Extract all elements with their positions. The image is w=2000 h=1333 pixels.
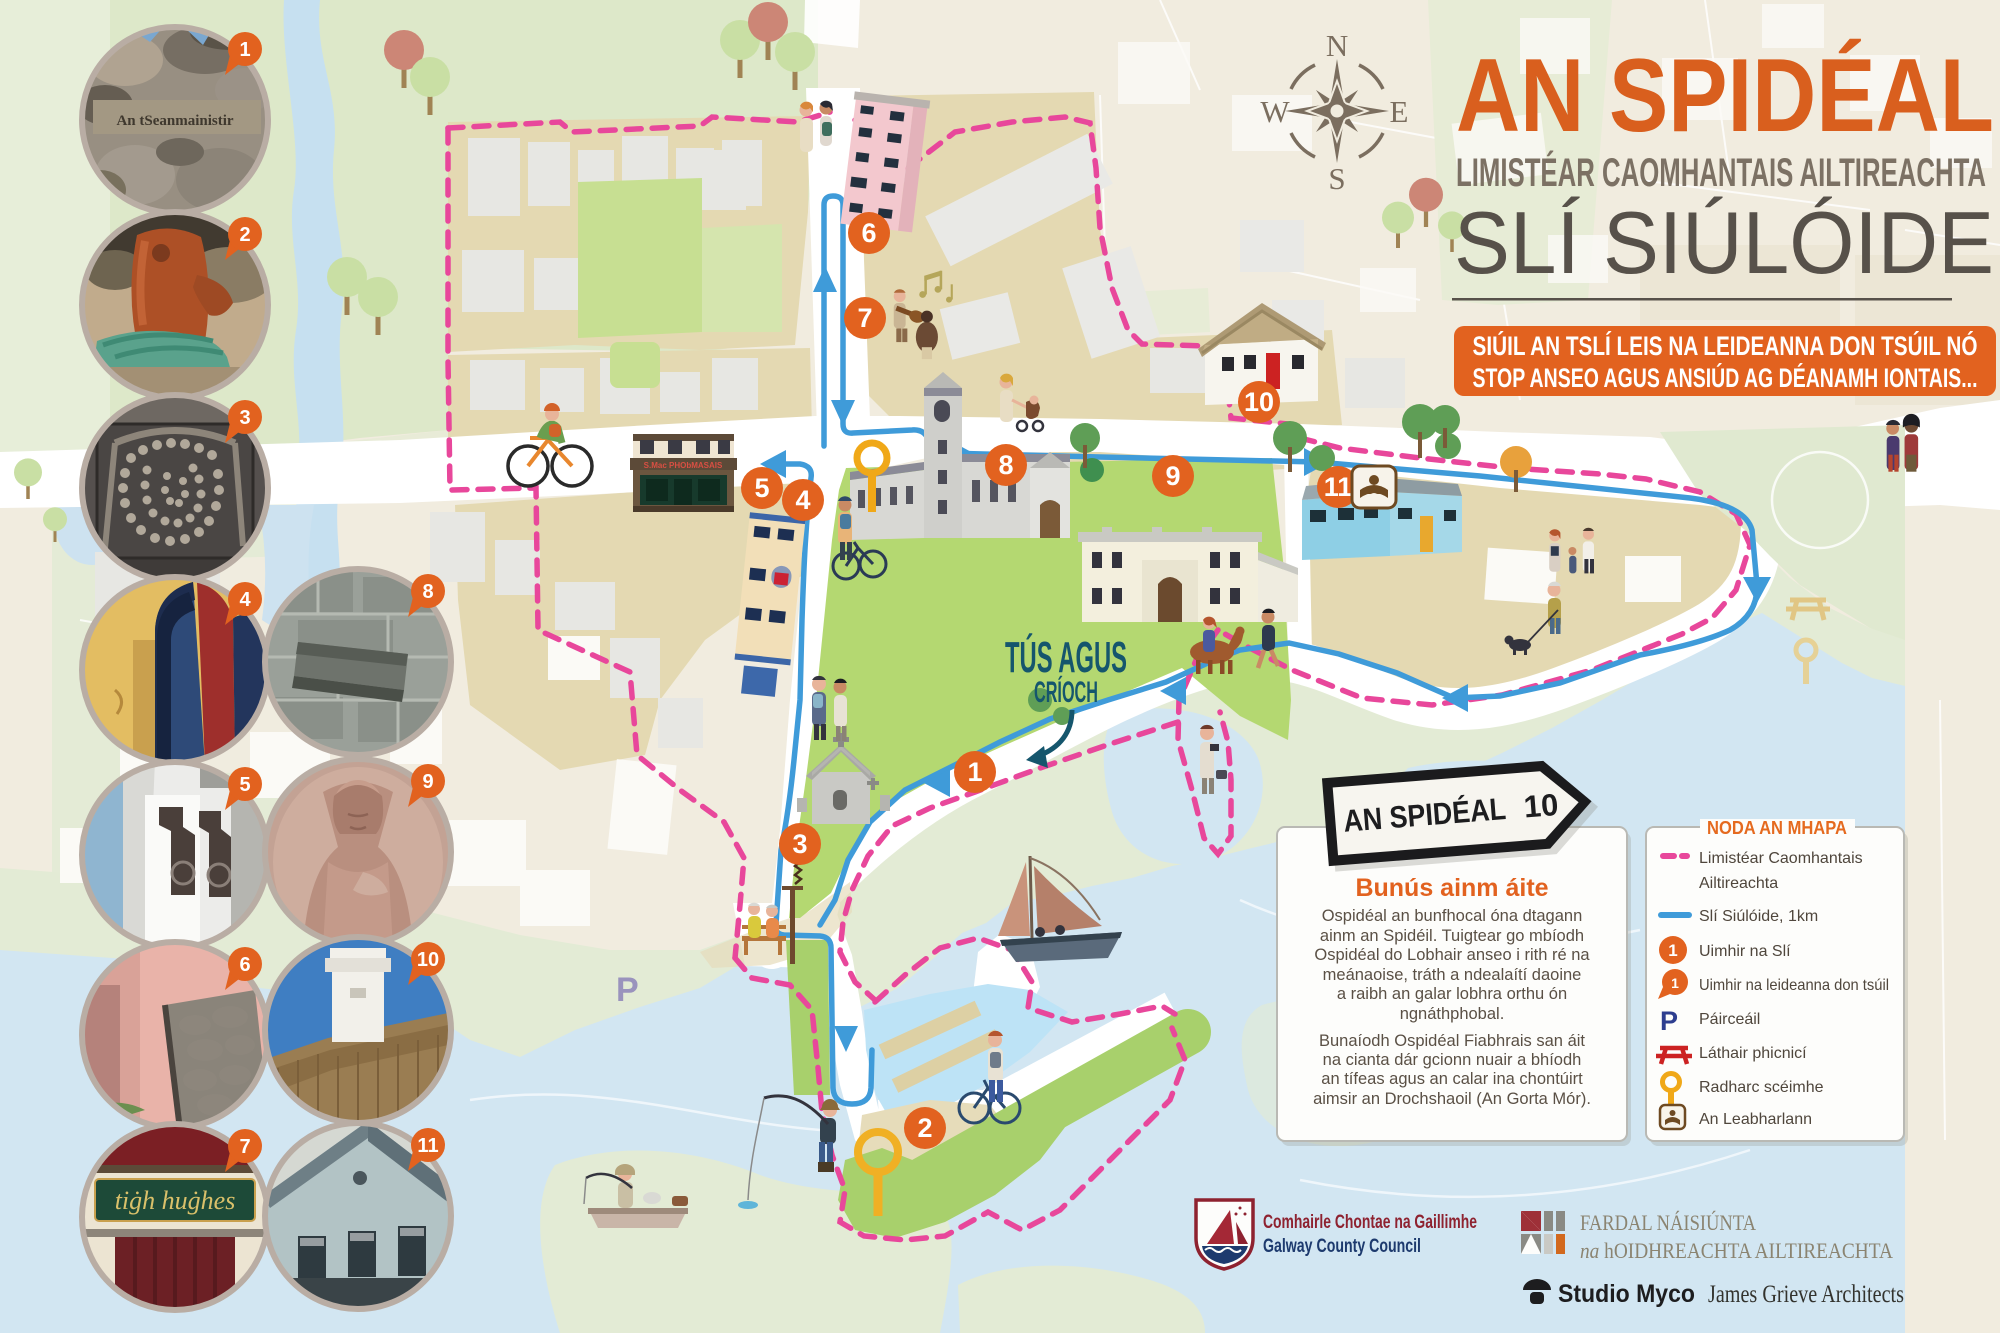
svg-text:TÚS AGUS: TÚS AGUS [1005,632,1127,682]
svg-text:W: W [1260,94,1290,129]
svg-text:8: 8 [422,581,433,603]
svg-text:FARDAL NÁISIÚNTA: FARDAL NÁISIÚNTA [1580,1210,1756,1235]
svg-text:E: E [1390,94,1409,129]
svg-text:An tSeanmainistir: An tSeanmainistir [116,113,233,129]
svg-text:5: 5 [239,774,250,796]
svg-text:2: 2 [917,1113,932,1143]
svg-text:10: 10 [1244,387,1274,417]
svg-text:1: 1 [1671,975,1679,991]
svg-text:a raibh an galar lobhra orthu: a raibh an galar lobhra orthu ón [1337,985,1567,1003]
svg-text:na hOIDHREACHTA AILTIREACHTA: na hOIDHREACHTA AILTIREACHTA [1580,1238,1893,1263]
svg-text:11: 11 [1324,472,1353,502]
svg-text:Uimhir na leideanna don tsúil: Uimhir na leideanna don tsúil [1699,977,1889,994]
svg-text:ainm an Spidéil. Tuigtear go m: ainm an Spidéil. Tuigtear go mbíodh [1320,927,1584,945]
svg-text:3: 3 [792,829,807,859]
svg-text:Slí Siúlóide, 1km: Slí Siúlóide, 1km [1699,908,1818,925]
svg-text:3: 3 [239,407,250,429]
svg-text:11: 11 [417,1135,438,1157]
svg-text:AN SPIDÉAL: AN SPIDÉAL [1456,38,1994,154]
svg-text:S.Mac PHObMASAIS: S.Mac PHObMASAIS [644,461,723,470]
svg-text:7: 7 [857,303,872,333]
svg-text:1: 1 [239,39,250,61]
svg-text:NODA AN MHAPA: NODA AN MHAPA [1707,818,1847,838]
svg-text:CRÍOCH: CRÍOCH [1034,675,1098,709]
svg-text:Limistéar Caomhantais: Limistéar Caomhantais [1699,850,1863,867]
svg-text:Comhairle Chontae na Gaillimhe: Comhairle Chontae na Gaillimhe [1263,1212,1477,1233]
svg-text:4: 4 [795,485,810,515]
svg-text:An Leabharlann: An Leabharlann [1699,1111,1812,1128]
svg-text:Bunús ainm áite: Bunús ainm áite [1355,874,1548,902]
svg-text:LIMISTÉAR CAOMHANTAIS AILTIREA: LIMISTÉAR CAOMHANTAIS AILTIREACHTA [1456,150,1986,195]
svg-text:4: 4 [239,589,251,611]
svg-text:ngnáthphobal.: ngnáthphobal. [1400,1005,1505,1023]
svg-text:9: 9 [1165,461,1180,491]
svg-text:5: 5 [754,473,769,503]
svg-text:Galway County Council: Galway County Council [1263,1236,1421,1257]
svg-text:Ailtireachta: Ailtireachta [1699,875,1778,892]
svg-text:Uimhir na Slí: Uimhir na Slí [1699,943,1791,960]
svg-text:STOP ANSEO AGUS ANSIÚD AG DÉAN: STOP ANSEO AGUS ANSIÚD AG DÉANAMH IONTAI… [1473,362,1978,393]
svg-text:SLÍ SIÚLÓIDE: SLÍ SIÚLÓIDE [1454,193,1994,292]
svg-text:Studio Myco: Studio Myco [1558,1280,1695,1308]
svg-text:10: 10 [417,949,439,971]
svg-text:8: 8 [998,450,1013,480]
svg-text:10: 10 [1522,787,1559,825]
svg-text:9: 9 [422,771,433,793]
svg-text:an tífeas agus an calar ina ch: an tífeas agus an calar ina chontúirt [1321,1070,1583,1088]
svg-text:6: 6 [239,954,250,976]
svg-text:SIÚIL AN TSLÍ LEIS NA LEIDEANN: SIÚIL AN TSLÍ LEIS NA LEIDEANNA DON TSÚI… [1473,330,1978,361]
svg-text:meánaoise, tráth a ndealaítí d: meánaoise, tráth a ndealaítí daoine [1323,966,1582,984]
svg-text:na cianta dár gcionn nuair a b: na cianta dár gcionn nuair a bhíodh [1323,1051,1582,1069]
svg-text:6: 6 [861,218,876,248]
svg-text:Ospidéal an bunfhocal óna dtag: Ospidéal an bunfhocal óna dtagann [1322,907,1583,925]
svg-text:James Grieve Architects: James Grieve Architects [1708,1281,1904,1308]
svg-text:Radharc scéimhe: Radharc scéimhe [1699,1079,1824,1096]
svg-text:aimsir an Drochshaoil (An Gort: aimsir an Drochshaoil (An Gorta Mór). [1313,1090,1591,1108]
svg-text:tiġh huġhes: tiġh huġhes [115,1186,236,1215]
svg-text:N: N [1326,28,1348,63]
svg-text:S: S [1328,161,1345,196]
svg-text:Láthair phicnicí: Láthair phicnicí [1699,1045,1807,1062]
svg-text:P: P [1660,1006,1678,1036]
svg-text:1: 1 [967,757,982,787]
svg-text:1: 1 [1668,941,1677,960]
svg-text:2: 2 [239,224,250,246]
svg-text:Ospidéal do Lobhair anseo i ri: Ospidéal do Lobhair anseo i rith ré na [1314,946,1590,964]
svg-text:Bunaíodh Ospidéal Fiabhrais sa: Bunaíodh Ospidéal Fiabhrais san áit [1319,1032,1585,1050]
svg-text:Páirceáil: Páirceáil [1699,1011,1760,1028]
svg-text:7: 7 [239,1136,250,1158]
svg-text:P: P [616,971,639,1009]
